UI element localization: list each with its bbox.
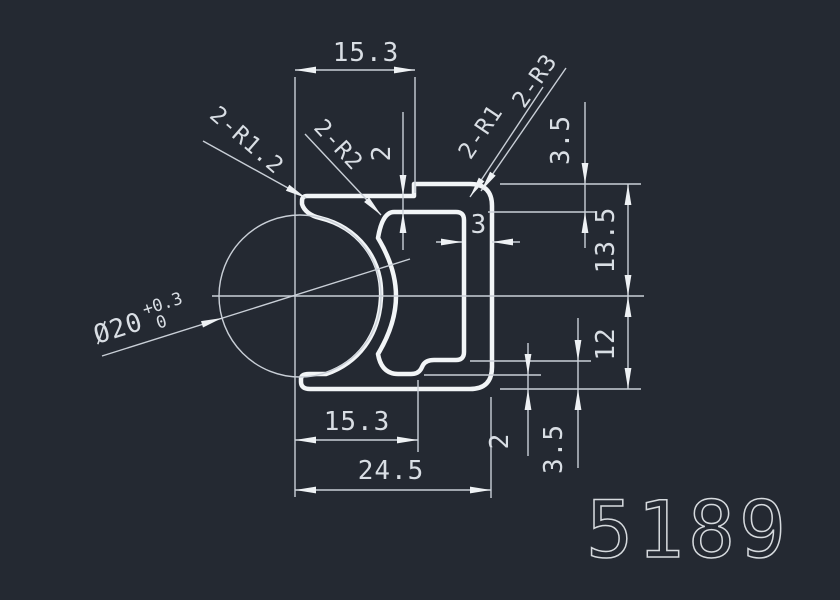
arrowhead bbox=[575, 340, 582, 361]
dim-label-bottom-step: 2 bbox=[485, 433, 515, 450]
dim-label-upper-height: 13.5 bbox=[591, 207, 621, 274]
arrowhead bbox=[625, 368, 632, 389]
arrowhead bbox=[441, 239, 462, 246]
arrowhead bbox=[364, 197, 381, 215]
dim-label-top-width: 15.3 bbox=[333, 38, 400, 68]
dimension-labels: 15.3 2 2-R1.2 2-R2 2-R1 2-R3 3.5 13.5 12… bbox=[89, 38, 790, 576]
dim-label-wall-thickness: 3 bbox=[471, 210, 488, 240]
profile-inner-cavity bbox=[378, 212, 464, 374]
dim-label-lower-height: 12 bbox=[591, 327, 621, 360]
dim-label-lip-thickness: 3.5 bbox=[546, 115, 576, 165]
part-number-label: 5189 bbox=[586, 486, 790, 576]
arrowhead bbox=[625, 275, 632, 296]
arrowhead bbox=[575, 389, 582, 410]
arrowhead bbox=[492, 239, 513, 246]
dim-label-total-width: 24.5 bbox=[358, 456, 425, 486]
arrowhead bbox=[470, 487, 491, 494]
arrowhead bbox=[400, 212, 407, 233]
dim-label-bottom-wall: 3.5 bbox=[539, 424, 569, 474]
diameter-callout: Ø20 +0.3 0 bbox=[89, 289, 191, 353]
diameter-tolerance-lower: 0 bbox=[154, 311, 170, 333]
radius-label-top-left: 2-R1.2 bbox=[204, 102, 288, 180]
profile-geometry bbox=[301, 184, 492, 389]
cad-drawing-stage: 15.3 2 2-R1.2 2-R2 2-R1 2-R3 3.5 13.5 12… bbox=[0, 0, 840, 600]
arrowhead bbox=[295, 67, 316, 74]
arrowhead bbox=[625, 296, 632, 317]
arrowhead bbox=[295, 487, 316, 494]
radius-label-inner-left: 2-R2 bbox=[308, 115, 368, 176]
arrowhead bbox=[397, 437, 418, 444]
radius-label-inner-right: 2-R1 bbox=[454, 100, 509, 164]
arrowhead bbox=[295, 437, 316, 444]
dim-label-top-step: 2 bbox=[367, 145, 397, 162]
arrowhead bbox=[286, 185, 306, 198]
drawing-canvas: 15.3 2 2-R1.2 2-R2 2-R1 2-R3 3.5 13.5 12… bbox=[0, 0, 840, 600]
arrowhead bbox=[625, 184, 632, 205]
radius-label-outer-right: 2-R3 bbox=[508, 49, 563, 113]
arrowhead bbox=[525, 354, 532, 375]
arrowhead bbox=[582, 212, 589, 233]
arrowhead bbox=[400, 175, 407, 196]
dim-label-bottom-inner: 15.3 bbox=[324, 407, 391, 437]
arrowhead bbox=[582, 163, 589, 184]
arrowhead bbox=[201, 318, 222, 328]
arrowhead bbox=[525, 389, 532, 410]
